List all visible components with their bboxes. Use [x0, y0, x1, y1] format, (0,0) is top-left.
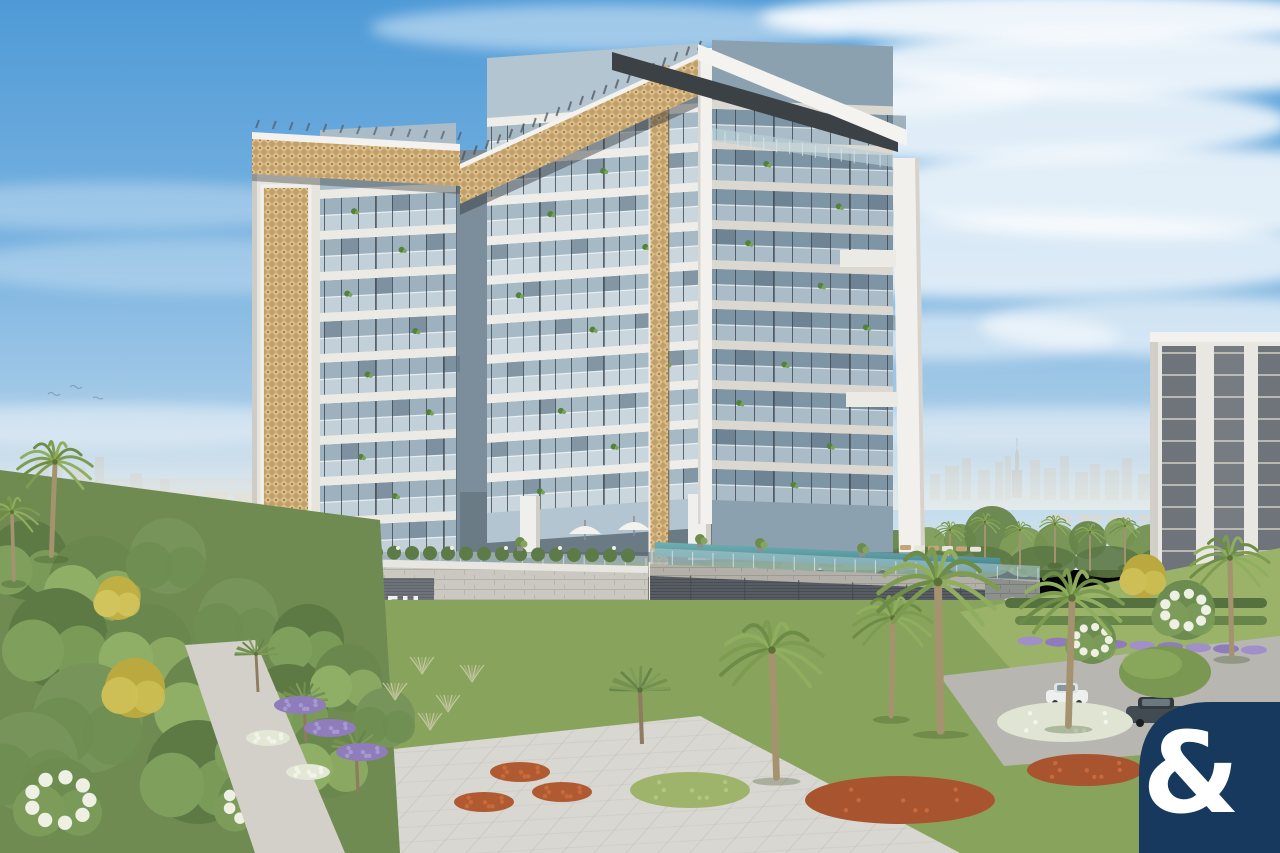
frame-beam	[840, 250, 896, 267]
scene-canvas: ELLINGTON HOUSE ELLINGTON &	[0, 0, 1280, 853]
watermark-badge: &	[1139, 702, 1280, 853]
architectural-rendering: ELLINGTON HOUSE ELLINGTON &	[0, 0, 1280, 853]
frame-beam	[846, 392, 898, 407]
ampersand-icon: &	[1142, 709, 1240, 839]
gold-mesh-panel	[264, 188, 308, 542]
left-tower-pier	[252, 140, 320, 562]
